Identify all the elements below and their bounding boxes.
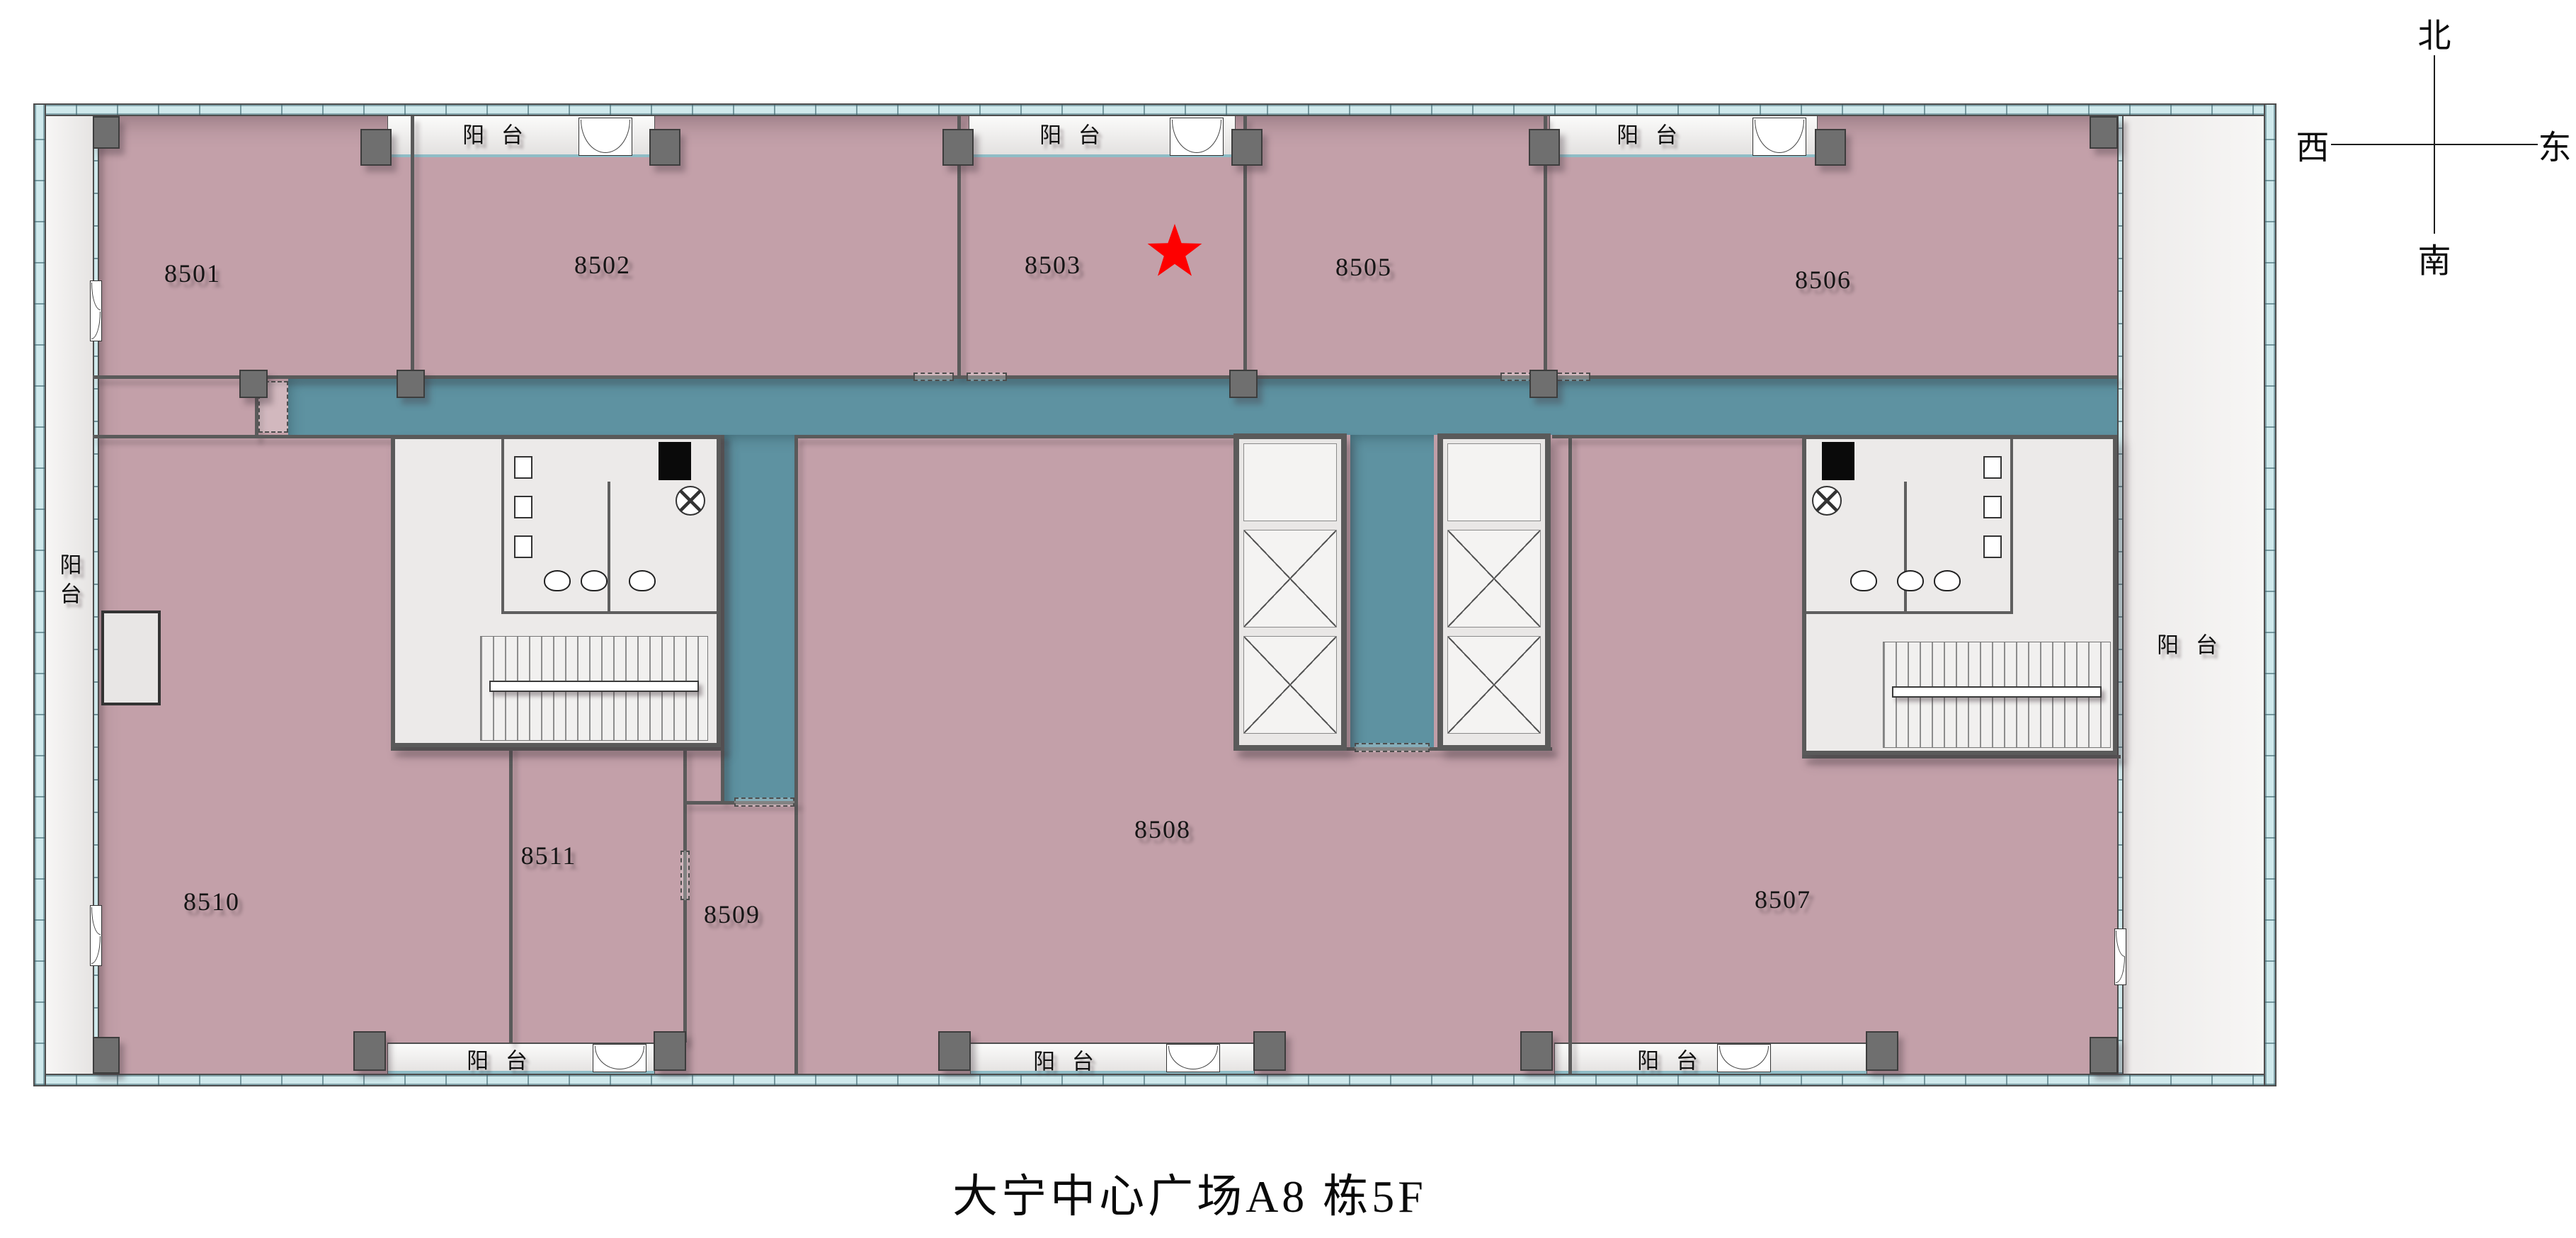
compass-south: 南	[2418, 234, 2451, 283]
door-8511-side	[680, 851, 690, 900]
sink	[1983, 456, 2002, 479]
elevator-shaft	[1243, 636, 1337, 734]
column	[938, 1031, 971, 1071]
exhaust-fan-icon	[676, 486, 705, 516]
balcony-label: 阳 台	[1039, 118, 1106, 149]
service-box	[101, 611, 161, 705]
wall-core-right-bottom	[1802, 755, 2121, 759]
column	[654, 1031, 686, 1071]
room-label-8508: 8508	[1134, 814, 1191, 844]
sink	[514, 496, 532, 518]
wall-corridor-bottom-3	[1552, 435, 1806, 438]
toilet	[629, 570, 656, 591]
door-stub-center	[1355, 743, 1430, 752]
room-label-8506: 8506	[1795, 265, 1852, 295]
room-label-8503: 8503	[1025, 250, 1081, 280]
column	[360, 129, 392, 166]
glass-wall-bottom	[33, 1074, 2276, 1086]
door-corridor-8502	[913, 373, 954, 381]
toilet	[544, 570, 571, 591]
core-right	[1802, 435, 2117, 755]
balcony-label: 阳 台	[1033, 1044, 1100, 1076]
column	[1520, 1031, 1553, 1071]
floor-plan: 8501850285038505850685078508850985108511…	[33, 103, 2276, 1086]
elevator-lobby	[1447, 443, 1541, 521]
right-balcony	[2124, 116, 2264, 1074]
corridor-stub-left	[724, 435, 794, 801]
balcony-label: 阳 台	[1637, 1043, 1704, 1075]
core-left-partition-v2	[608, 482, 610, 613]
plan-title: 大宁中心广场A8 栋5F	[952, 1160, 1427, 1225]
shaft	[1822, 442, 1854, 480]
core-right-partition-v1	[2010, 439, 2013, 613]
sink	[514, 535, 532, 558]
sink	[1983, 535, 2002, 558]
room-label-8510: 8510	[183, 887, 240, 916]
wall-8501-8502	[411, 116, 414, 375]
stairs-right	[1883, 642, 2111, 748]
balcony-door	[579, 118, 632, 156]
core-left-partition-h	[501, 611, 717, 614]
corridor-main	[288, 379, 2117, 435]
room-label-8509: 8509	[704, 899, 760, 929]
column	[649, 129, 680, 166]
balcony-door-west	[90, 280, 102, 341]
column	[239, 370, 268, 398]
wall-core-left-bottom	[391, 747, 724, 751]
floorplan-page: 8501850285038505850685078508850985108511…	[0, 0, 2576, 1238]
toilet	[1850, 570, 1877, 591]
column	[353, 1031, 386, 1071]
stair-rail	[489, 681, 699, 692]
core-left	[391, 435, 721, 747]
toilet	[1897, 570, 1924, 591]
elevator-shaft	[1447, 636, 1541, 734]
column	[2090, 1037, 2118, 1074]
wall-corridor-bottom-2	[794, 435, 1237, 438]
column	[397, 370, 425, 398]
door-stub-8509	[734, 797, 794, 807]
stair-rail	[1892, 686, 2102, 698]
compass-rose: 北 南 西 东	[2294, 11, 2570, 288]
balcony-door	[593, 1044, 646, 1072]
sink	[514, 456, 532, 479]
compass-axis-horizontal	[2331, 144, 2538, 145]
compass-north: 北	[2418, 8, 2451, 57]
balcony-door	[1717, 1044, 1771, 1072]
corridor-stub-center	[1350, 435, 1434, 747]
wall-8508-8507	[1568, 435, 1572, 1074]
glass-wall-top	[33, 103, 2276, 116]
compass-east: 东	[2538, 120, 2572, 169]
sink	[1983, 496, 2002, 518]
elevator-bank-left	[1233, 433, 1347, 751]
toilet	[581, 570, 608, 591]
wall-8509-8508	[794, 435, 798, 1074]
balcony-door-west	[90, 905, 102, 966]
elevator-shaft	[1447, 530, 1541, 627]
column	[93, 1037, 120, 1074]
shaft	[659, 442, 691, 480]
balcony-door-east	[2114, 928, 2126, 985]
column	[1231, 129, 1263, 166]
balcony-door	[1753, 118, 1806, 156]
room-label-8505: 8505	[1335, 252, 1392, 282]
core-left-partition-v1	[501, 439, 504, 613]
room-label-8502: 8502	[574, 250, 631, 280]
column	[1866, 1031, 1898, 1071]
column	[1529, 370, 1558, 398]
column	[1529, 129, 1560, 166]
balcony-label: 阳 台	[1617, 118, 1683, 149]
balcony-label: 阳 台	[2157, 627, 2223, 659]
door-corridor-8503	[967, 373, 1007, 381]
elevator-bank-right	[1437, 433, 1551, 751]
core-right-partition-h	[1806, 611, 2013, 614]
column	[93, 116, 120, 149]
column	[1815, 129, 1846, 166]
wall-corridor-stub-left	[721, 435, 724, 801]
balcony-label: 阳台	[53, 553, 85, 611]
column	[942, 129, 974, 166]
elevator-lobby	[1243, 443, 1337, 521]
glass-wall-left	[33, 103, 46, 1086]
room-label-8511: 8511	[521, 841, 577, 870]
balcony-label: 阳 台	[467, 1043, 533, 1075]
column	[1229, 370, 1258, 398]
balcony-label: 阳 台	[462, 118, 529, 149]
balcony-door	[1170, 118, 1224, 156]
compass-west: 西	[2296, 120, 2330, 169]
exhaust-fan-icon	[1812, 486, 1842, 516]
room-label-8501: 8501	[164, 259, 221, 288]
balcony-door	[1166, 1044, 1220, 1072]
toilet	[1934, 570, 1961, 591]
glass-wall-right	[2264, 103, 2276, 1086]
column	[2090, 116, 2118, 149]
core-right-partition-v2	[1904, 482, 1907, 613]
stairs-left	[480, 636, 708, 741]
column	[1253, 1031, 1286, 1071]
room-label-8507: 8507	[1755, 885, 1811, 914]
elevator-shaft	[1243, 530, 1337, 627]
balcony-bottom-3	[1554, 1043, 1867, 1074]
